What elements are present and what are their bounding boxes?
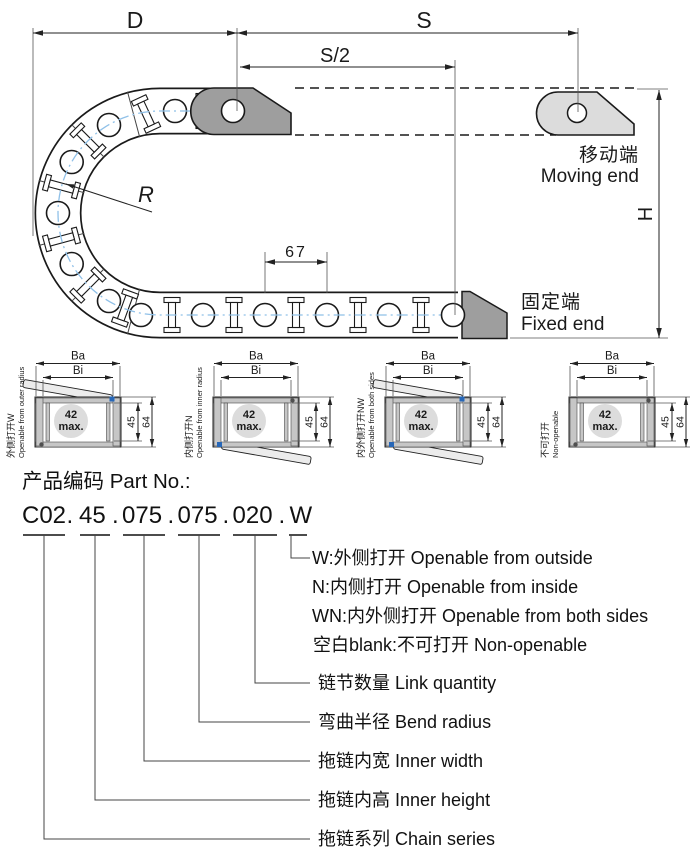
part-no-segment-series: C02 — [22, 502, 66, 530]
dim-label-d: D — [127, 7, 144, 33]
dim-45: 45 — [660, 416, 672, 428]
dim-label-s-half: S/2 — [320, 45, 350, 67]
part-no-connector-lines — [23, 535, 310, 839]
moving-end-label-en: Moving end — [541, 166, 639, 187]
legend-openable-both: WN:内外侧打开 Openable from both sides — [312, 605, 648, 627]
hinge-pin-icon — [460, 397, 465, 402]
fixed-pin-icon — [573, 442, 577, 446]
fixed-end-hole — [442, 304, 465, 327]
dim-bi: Bi — [423, 365, 433, 377]
bore-value: 42 — [599, 409, 611, 421]
dim-label-pitch: 67 — [285, 244, 307, 261]
part-no-segment-height: 45 — [79, 502, 106, 530]
fixed-pin-icon — [290, 398, 294, 402]
section-openable-inner: 内侧打开N Openable from inner radius 42 max.… — [183, 351, 334, 465]
dim-bi: Bi — [607, 365, 617, 377]
fixed-end-label-cn: 固定端 — [521, 291, 581, 313]
section-openable-both: 内外侧打开NW Openable from both sides 42 max. — [355, 351, 506, 465]
dim-bi: Bi — [251, 365, 261, 377]
dim-64: 64 — [491, 416, 503, 428]
hinge-pin-icon — [389, 442, 394, 447]
moving-end-bracket-hole — [222, 100, 245, 123]
fixed-end-label-en: Fixed end — [521, 314, 604, 335]
hinge-pin-icon — [110, 397, 115, 402]
section-label-cn: 内外侧打开NW — [355, 398, 366, 458]
part-no-dot: . — [67, 502, 74, 530]
part-no-segment-links: 020 — [233, 502, 273, 530]
section-openable-outer: 外侧打开W Openable from outer radius 42 max.… — [5, 351, 156, 459]
fixed-pin-icon — [39, 442, 43, 446]
dim-ba: Ba — [421, 351, 436, 363]
dim-64: 64 — [319, 416, 331, 428]
bore-value: 42 — [65, 409, 77, 421]
bore-max: max. — [236, 421, 261, 433]
hinge-pin-icon — [217, 442, 222, 447]
dim-64: 64 — [675, 416, 687, 428]
part-no-dot: . — [223, 502, 230, 530]
bore-max: max. — [592, 421, 617, 433]
legend-openable-outside: W:外侧打开 Openable from outside — [312, 547, 593, 569]
legend-link-quantity: 链节数量 Link quantity — [318, 672, 496, 694]
dim-45: 45 — [476, 416, 488, 428]
moving-end-far-hole — [568, 104, 587, 123]
dim-bi: Bi — [73, 365, 83, 377]
legend-chain-series: 拖链系列 Chain series — [318, 828, 495, 850]
dim-45: 45 — [126, 416, 138, 428]
legend-inner-width: 拖链内宽 Inner width — [318, 750, 483, 772]
part-no-segment-opening: W — [290, 502, 313, 530]
fixed-end-bracket — [462, 292, 507, 339]
part-no-segment-radius: 075 — [178, 502, 218, 530]
bore-value: 42 — [415, 409, 427, 421]
section-label-cn: 不可打开 — [539, 422, 550, 458]
dim-label-h: H — [635, 207, 657, 221]
part-no-segment-width: 075 — [122, 502, 162, 530]
section-label-en: Non-openable — [551, 411, 560, 458]
chain-side-view: D S S/2 67 H R 移动端 Moving end 固定端 Fixed … — [33, 7, 668, 339]
part-no-dot: . — [279, 502, 286, 530]
drag-chain-datasheet: D S S/2 67 H R 移动端 Moving end 固定端 Fixed … — [0, 0, 700, 858]
dim-45: 45 — [304, 416, 316, 428]
legend-bend-radius: 弯曲半径 Bend radius — [318, 711, 491, 733]
bore-value: 42 — [243, 409, 255, 421]
part-no-dot: . — [112, 502, 119, 530]
part-no-dot: . — [168, 502, 175, 530]
moving-end-label-cn: 移动端 — [579, 144, 639, 166]
section-non-openable: 不可打开 Non-openable 42 max. Ba Bi 45 64 — [539, 351, 690, 459]
part-no-title: 产品编码 Part No.: — [22, 464, 191, 494]
bore-max: max. — [408, 421, 433, 433]
connector-elbows — [44, 535, 310, 839]
legend-openable-inside: N:内侧打开 Openable from inside — [312, 576, 578, 598]
dim-64: 64 — [141, 416, 153, 428]
dim-label-r: R — [138, 182, 154, 207]
dim-ba: Ba — [71, 351, 86, 363]
dim-ba: Ba — [605, 351, 620, 363]
dim-label-s: S — [416, 7, 431, 33]
legend-non-openable: 空白blank:不可打开 Non-openable — [313, 634, 587, 656]
section-label-en: Openable from inner radius — [195, 367, 204, 458]
fixed-pin-icon — [646, 398, 650, 402]
dim-ba: Ba — [249, 351, 264, 363]
section-label-cn: 外侧打开W — [5, 413, 16, 458]
section-label-cn: 内侧打开N — [183, 416, 194, 459]
bore-max: max. — [58, 421, 83, 433]
chain-band-body — [58, 111, 458, 315]
legend-inner-height: 拖链内高 Inner height — [318, 789, 490, 811]
